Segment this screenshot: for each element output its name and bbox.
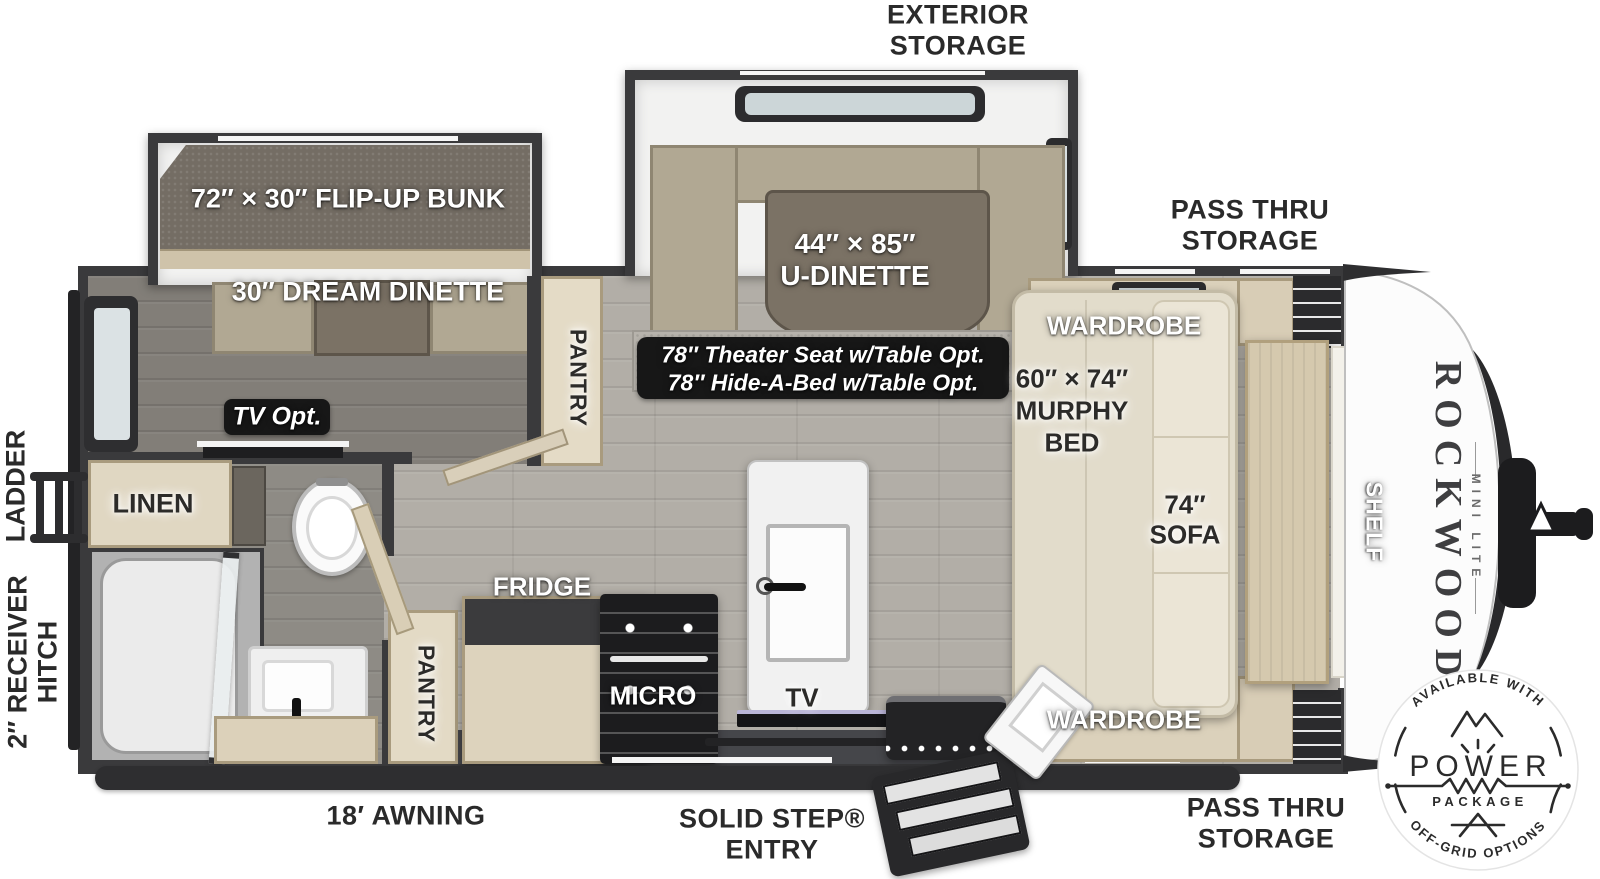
- murphy-bed-panel: [1245, 340, 1329, 684]
- udinette-bench-left: [650, 145, 738, 353]
- awning-roll: [95, 766, 1240, 790]
- wall-bathroom-right-upper: [382, 452, 394, 556]
- wall-top-left: [78, 266, 158, 276]
- tv-arm: [705, 738, 890, 746]
- bunk-window-slit: [218, 136, 458, 141]
- udinette-window-slit: [740, 71, 985, 75]
- ladder-label: LADDER: [1, 430, 32, 543]
- sofa-seam: [1085, 300, 1087, 708]
- ladder-rung-1: [36, 476, 44, 540]
- exterior-storage-label-line1: EXTERIOR: [887, 0, 1029, 31]
- top-wall-slit-2: [1240, 269, 1330, 274]
- shelf-label: SHELF: [1361, 482, 1388, 562]
- bottom-wall-slit-1: [612, 757, 832, 763]
- floorplan-canvas: 78″ Theater Seat w/Table Opt. 78″ Hide-A…: [0, 0, 1600, 879]
- brand-name: ROCKWOOD: [1426, 361, 1470, 688]
- pantry-rear-label: PANTRY: [565, 329, 592, 427]
- dream-dinette-label: 30″ DREAM DINETTE: [232, 277, 504, 308]
- pass-thru-bottom-label-line2: STORAGE: [1198, 824, 1335, 855]
- pantry-kitchen-label: PANTRY: [413, 645, 440, 743]
- theater-seat-label-line1: 78″ Theater Seat w/Table Opt.: [661, 342, 984, 369]
- toilet-seat: [306, 496, 358, 560]
- solid-step-label-line1: SOLID STEP®: [679, 804, 865, 835]
- badge-power-text: POWER: [1409, 750, 1552, 783]
- badge-dot-left: [1385, 783, 1391, 789]
- ladder-rung-2: [55, 476, 63, 540]
- toilet-hinge: [316, 478, 348, 486]
- sofa-label-line2: SOFA: [1150, 520, 1221, 551]
- tv-opt-label: TV Opt.: [233, 403, 322, 432]
- grill-cooktop: [886, 696, 1006, 760]
- brand-rule-top: [1475, 442, 1476, 478]
- tv-label: TV: [785, 683, 818, 714]
- fridge-label: FRIDGE: [493, 572, 591, 603]
- pass-thru-bottom-label-line1: PASS THRU: [1187, 793, 1346, 824]
- corner-cabinet-top: [1237, 278, 1295, 346]
- pass-thru-top-label-line2: STORAGE: [1182, 226, 1319, 257]
- badge-dot-right: [1565, 783, 1571, 789]
- bunk-rail: [160, 249, 530, 269]
- wall-top-mid: [532, 266, 634, 276]
- corner-cabinet-bottom: [1237, 676, 1295, 762]
- receiver-hitch-label-line1: 2″ RECEIVER: [3, 575, 34, 748]
- micro-label: MICRO: [610, 681, 697, 712]
- murphy-bed-label-line3: BED: [1045, 428, 1100, 459]
- wardrobe-top-label: WARDROBE: [1047, 311, 1202, 342]
- murphy-bed-label-line2: MURPHY: [1016, 396, 1129, 427]
- pass-thru-top-label-line1: PASS THRU: [1171, 195, 1330, 226]
- hitch-coupler: [1575, 508, 1593, 540]
- top-wall-slit-1: [1115, 269, 1195, 274]
- tv-rear: [203, 447, 343, 458]
- stove: [600, 594, 718, 764]
- solid-step-label-line2: ENTRY: [725, 835, 818, 866]
- entry-door-window: [766, 524, 850, 662]
- exterior-storage-label-line2: STORAGE: [890, 31, 1027, 62]
- u-dinette-label-line1: 44″ × 85″: [794, 228, 915, 260]
- linen-label: LINEN: [113, 489, 194, 520]
- stove-handle: [610, 656, 708, 662]
- corner-shelf-top: [1293, 276, 1341, 348]
- udinette-skylight-glass: [745, 93, 975, 115]
- murphy-bed-label-line1: 60″ × 74″: [1016, 364, 1128, 395]
- ladder-rung-3: [74, 476, 82, 540]
- corner-shelf-bottom: [1293, 690, 1341, 764]
- brand-model: MINI LITE: [1469, 474, 1483, 583]
- hide-a-bed-label-line2: 78″ Hide-A-Bed w/Table Opt.: [668, 370, 978, 397]
- awning-label: 18′ AWNING: [327, 801, 486, 832]
- wardrobe-bottom-label: WARDROBE: [1047, 705, 1202, 736]
- rear-window-glass: [94, 308, 130, 440]
- receiver-hitch-label-line2: HITCH: [33, 621, 64, 704]
- badge-package-text: PACKAGE: [1432, 794, 1528, 809]
- vanity-wood-shelf: [214, 716, 378, 764]
- entry-door-handle: [764, 583, 806, 591]
- linen-side-cabinet: [232, 466, 266, 546]
- brand-rule-bottom: [1475, 578, 1476, 614]
- flip-up-bunk-label: 72″ × 30″ FLIP-UP BUNK: [191, 184, 505, 215]
- u-dinette-label-line2: U-DINETTE: [780, 260, 929, 292]
- sofa-label-line1: 74″: [1164, 490, 1205, 521]
- power-package-badge: AVAILABLE WITH POWER PACKAGE OFF-GRID OP…: [1372, 664, 1584, 876]
